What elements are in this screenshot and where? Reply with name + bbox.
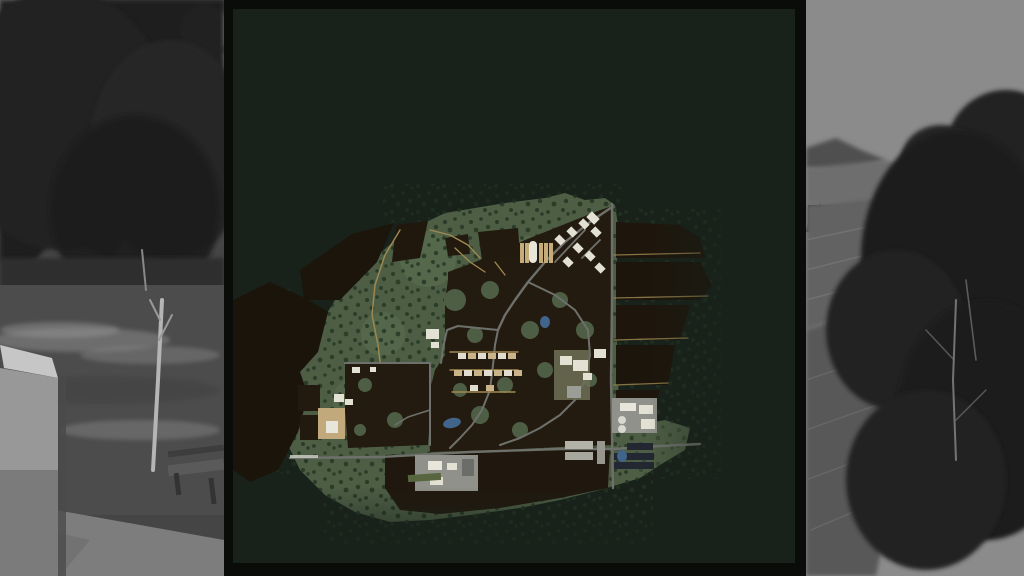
greenhouse <box>539 243 543 263</box>
house <box>488 353 496 359</box>
wall-side-shadow <box>58 378 66 576</box>
east-darkness-fade <box>648 194 795 504</box>
screenshot-root <box>0 0 1024 576</box>
farm-building <box>567 386 581 398</box>
house <box>458 353 466 359</box>
farm-building <box>560 356 572 365</box>
farm-building <box>352 367 360 373</box>
road-crossing <box>290 455 318 458</box>
pond <box>617 450 627 462</box>
flower-band <box>60 420 220 440</box>
house <box>498 353 506 359</box>
house <box>468 353 476 359</box>
house <box>494 370 502 376</box>
farm-building <box>334 394 344 402</box>
left-photo-panel <box>0 0 224 576</box>
greenhouse <box>544 243 548 263</box>
left-photo-image <box>0 0 224 576</box>
house <box>470 385 478 391</box>
field-small-west <box>298 385 320 411</box>
map-image <box>233 9 795 563</box>
map-frame <box>224 0 806 576</box>
hall-building <box>529 241 537 263</box>
shed <box>431 342 439 348</box>
farm-building <box>370 367 376 372</box>
farm-building <box>573 360 588 371</box>
house <box>478 353 486 359</box>
farm-building <box>447 463 457 470</box>
farm-building <box>428 461 442 470</box>
house <box>464 370 472 376</box>
farm-building <box>326 421 338 433</box>
house <box>454 370 462 376</box>
house <box>486 385 494 391</box>
right-photo-image <box>806 0 1024 576</box>
house <box>504 370 512 376</box>
right-photo-panel <box>806 0 1024 576</box>
storage-row <box>565 452 593 460</box>
storage-row <box>565 441 593 449</box>
farm-building <box>583 373 592 380</box>
field-top-center <box>478 228 520 260</box>
flower-band <box>80 346 220 364</box>
house <box>484 370 492 376</box>
field-small-west <box>300 415 318 440</box>
house <box>474 370 482 376</box>
shed <box>426 329 439 339</box>
farm-building <box>594 349 606 358</box>
greenhouse <box>549 243 553 263</box>
pond <box>540 316 550 328</box>
south-darkness-fade <box>263 487 763 563</box>
storage-row <box>597 441 605 464</box>
house <box>514 370 522 376</box>
farm-building <box>462 459 474 476</box>
house <box>508 353 516 359</box>
wall-lower-shade <box>0 470 58 576</box>
farm-building <box>620 403 636 411</box>
tree-canopy <box>846 390 1006 570</box>
flower-band <box>0 322 120 338</box>
greenhouse <box>525 243 529 263</box>
greenhouse <box>520 243 524 263</box>
farm-building <box>345 399 353 405</box>
